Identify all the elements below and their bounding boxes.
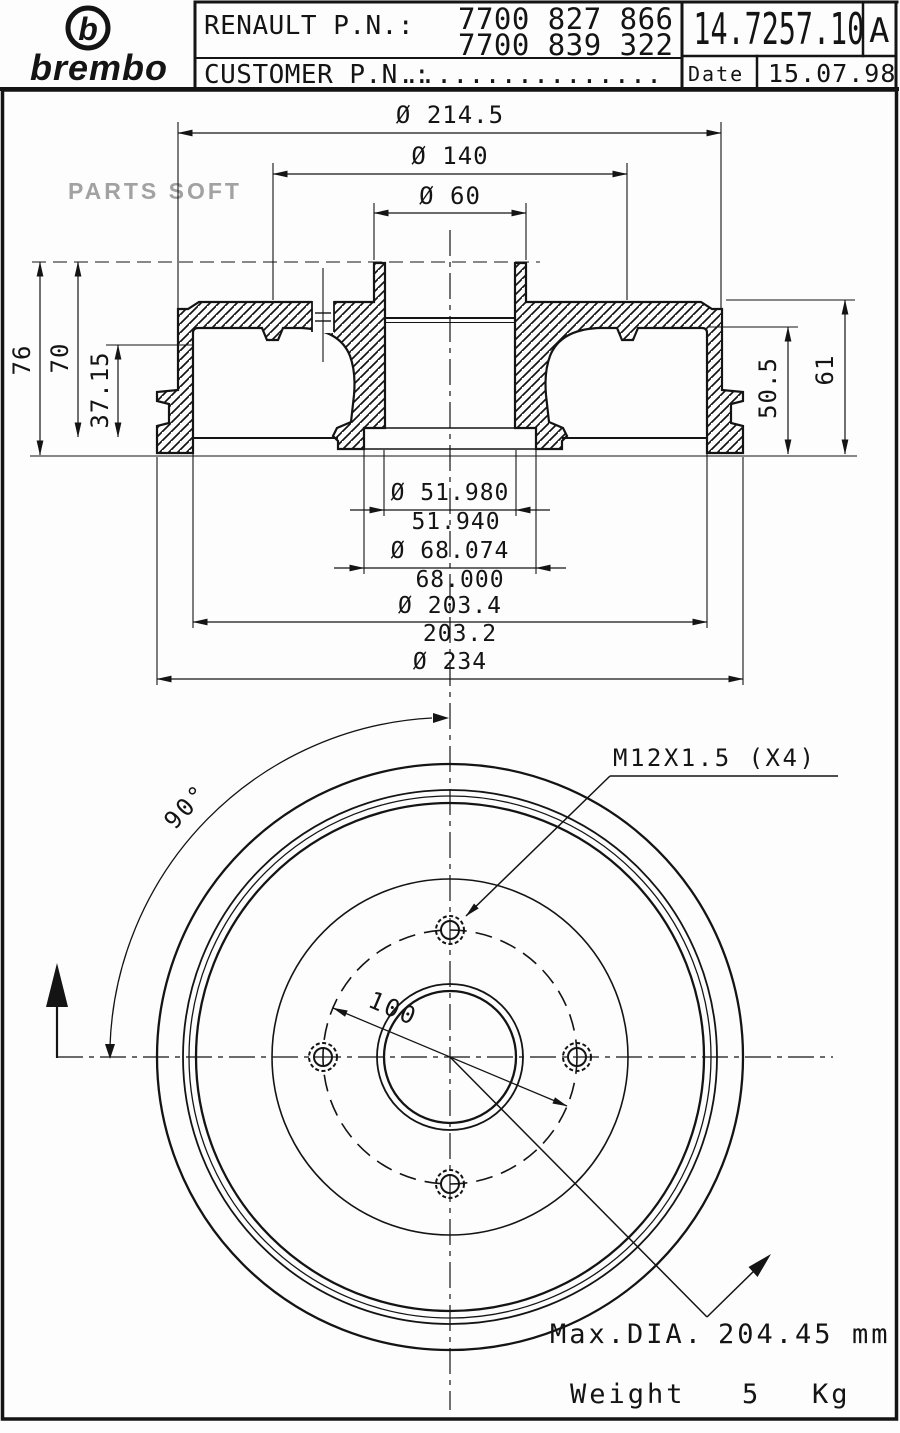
label-dia-60: Ø 60 — [419, 182, 481, 210]
date-label: Date — [688, 62, 744, 86]
label-dia-140: Ø 140 — [411, 142, 488, 170]
stud-hole — [312, 268, 334, 362]
label-bore-max: Ø 51.980 — [391, 480, 510, 506]
brembo-logo: b brembo — [30, 8, 168, 88]
brembo-wordmark: brembo — [30, 47, 168, 88]
customer-pn-value: ................ — [404, 60, 662, 90]
weight-line: Weight 5 Kg — [570, 1379, 851, 1410]
label-90-deg: 90° — [159, 778, 214, 834]
weight-label: Weight — [570, 1379, 686, 1410]
date-value: 15.07.98 — [768, 59, 896, 88]
customer-pn-label: CUSTOMER P.N.: — [204, 60, 430, 90]
brembo-logo-mark: b — [78, 11, 98, 47]
label-50-5: 50.5 — [754, 357, 782, 419]
drawing-number: 14.7257.10 — [693, 4, 864, 55]
max-dia-label: Max.DIA. — [550, 1319, 704, 1350]
label-70: 70 — [46, 343, 74, 374]
weight-unit: Kg — [812, 1379, 851, 1410]
label-dia-214: Ø 214.5 — [396, 101, 504, 129]
renault-pn-line2: 7700 839 322 — [458, 28, 674, 62]
max-dia-line: Max.DIA. 204.45 mm — [550, 1319, 891, 1350]
drum-section-left — [157, 263, 385, 453]
revision-letter: A — [869, 11, 889, 51]
label-37-15: 37.15 — [86, 351, 114, 428]
label-bearing-max: Ø 68.074 — [391, 538, 510, 564]
title-block: b brembo RENAULT P.N.: 7700 827 866 7700… — [2, 2, 897, 90]
parts-soft-watermark: PARTS SOFT — [68, 178, 242, 204]
label-76: 76 — [8, 345, 36, 376]
max-dia-value: 204.45 — [718, 1319, 834, 1350]
renault-pn-label: RENAULT P.N.: — [204, 11, 414, 41]
weight-value: 5 — [742, 1379, 761, 1410]
front-view-labels: M12X1.5 (X4) 90° 100 Max.DIA. 204.45 mm … — [159, 744, 891, 1410]
label-friction-min: 203.2 — [423, 621, 497, 647]
technical-drawing-page: b brembo RENAULT P.N.: 7700 827 866 7700… — [0, 0, 900, 1433]
max-dia-pointer — [450, 1057, 771, 1317]
drawing-canvas: b brembo RENAULT P.N.: 7700 827 866 7700… — [0, 0, 900, 1433]
max-dia-unit: mm — [852, 1319, 891, 1350]
arc-arrow-top — [433, 713, 449, 723]
label-friction-max: Ø 203.4 — [398, 593, 502, 619]
datum-arrow — [46, 963, 68, 1058]
drum-section-right — [515, 263, 743, 453]
label-bolt-spec: M12X1.5 (X4) — [613, 744, 816, 772]
label-bore-min: 51.940 — [411, 509, 500, 535]
label-bearing-min: 68.000 — [415, 567, 504, 593]
label-61: 61 — [811, 355, 839, 386]
label-dia-234: Ø 234 — [413, 649, 487, 675]
